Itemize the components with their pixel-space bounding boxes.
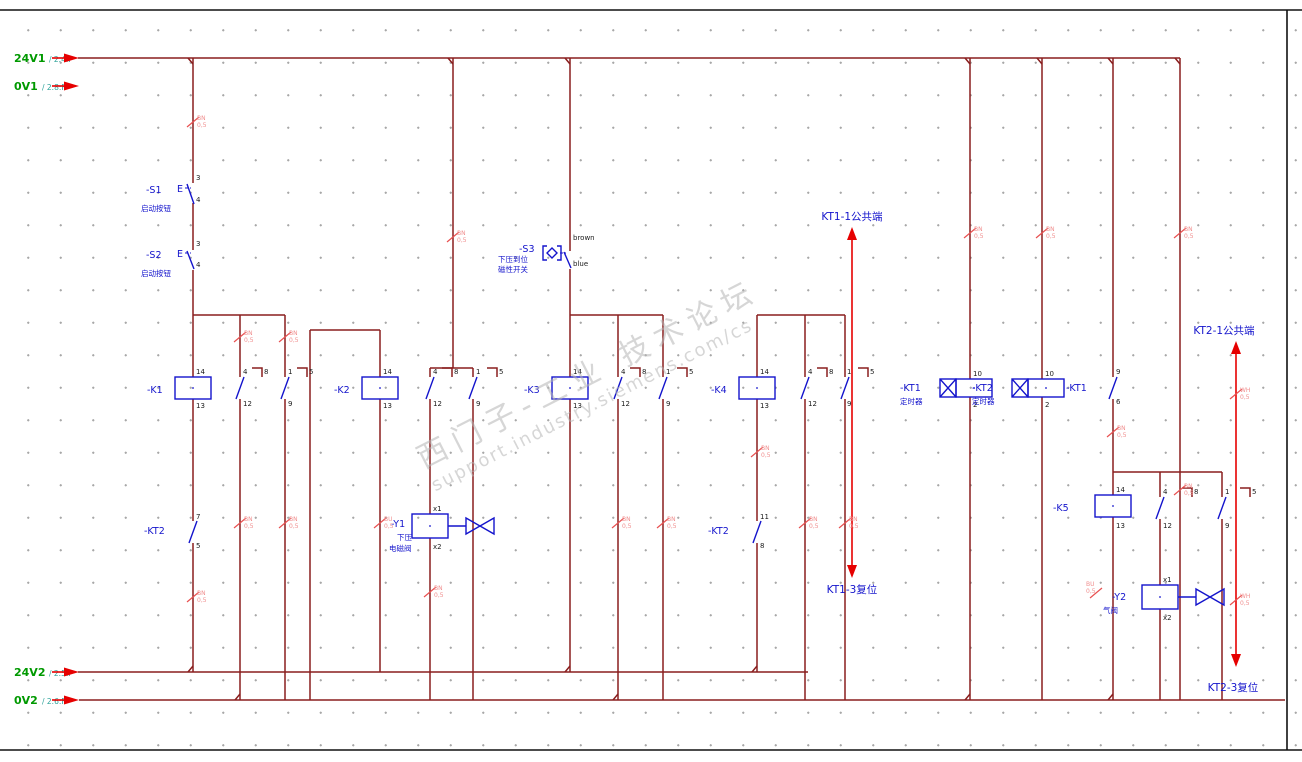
svg-text:BN0,5: BN0,5	[289, 330, 299, 344]
kt2-contact-left-pin-top: 7	[196, 513, 200, 521]
s2-pin-bottom: 4	[196, 261, 201, 269]
k5-pin-13: 13	[1116, 522, 1125, 530]
drawing-frame	[0, 10, 1302, 750]
k4-contact1-pin-top: 4	[808, 368, 813, 376]
svg-text:WH0,5: WH0,5	[1240, 387, 1250, 401]
svg-text:BN0,5: BN0,5	[974, 226, 984, 240]
k1-pin-13: 13	[196, 402, 205, 410]
k4-pin-13: 13	[760, 402, 769, 410]
rail-24v2: 24V2 / 2.5:F	[14, 666, 79, 679]
k2-contact1-aux-pin: 8	[454, 368, 458, 376]
k4-tag: -K4	[711, 385, 727, 396]
k1-contact2-aux-pin: 5	[309, 368, 313, 376]
s3-wire-brown: brown	[573, 234, 595, 242]
k5-pin-14: 14	[1116, 486, 1125, 494]
arrow-down-icon	[1231, 654, 1241, 667]
svg-text:BN0,5: BN0,5	[809, 516, 819, 530]
k4-contact1-aux-pin: 8	[829, 368, 833, 376]
k3-tag: -K3	[524, 385, 540, 396]
y2-pin-top: x1	[1163, 576, 1172, 584]
s2-pin-top: 3	[196, 240, 200, 248]
k3-contact2-pin-top: 1	[666, 368, 670, 376]
k4-contact2-pin-bottom: 9	[847, 400, 851, 408]
s1-desc: 启动按钮	[141, 203, 171, 213]
k5-contact1-pin-top: 4	[1163, 488, 1168, 496]
k1-contact1-pin-top: 4	[243, 368, 248, 376]
svg-text:BN0,5: BN0,5	[1046, 226, 1056, 240]
rail-0v2-ref: / 2.6:F	[42, 697, 66, 706]
k4-contact2-aux-pin: 5	[870, 368, 874, 376]
k1-contact2-pin-top: 1	[288, 368, 292, 376]
k3-contact2-aux-pin: 5	[689, 368, 693, 376]
kt2-desc: 定时器	[972, 396, 995, 406]
arrow-up-icon	[847, 227, 857, 240]
k5-contact2-pin-top: 1	[1225, 488, 1229, 496]
y2-desc: 气阀	[1103, 605, 1118, 615]
rail-24v1: 24V1 / 2.4:F	[14, 52, 79, 65]
kt2-contact-left-pin-bottom: 5	[196, 542, 200, 550]
svg-text:BN0,5: BN0,5	[1117, 425, 1127, 439]
k1-pin-14: 14	[196, 368, 205, 376]
svg-text:BN0,5: BN0,5	[434, 585, 444, 599]
svg-text:BN0,5: BN0,5	[667, 516, 677, 530]
k2-contact1-pin-top: 4	[433, 368, 438, 376]
k2-pin-13: 13	[383, 402, 392, 410]
y1-desc-1: 下压	[397, 533, 412, 542]
svg-text:BN0,5: BN0,5	[457, 230, 467, 244]
y1-pin-top: x1	[433, 505, 442, 513]
kt2-tag: -KT2	[972, 383, 993, 394]
kt1-annotation: KT1-1公共端 KT1-3复位	[821, 210, 883, 596]
svg-text:BN0,5: BN0,5	[622, 516, 632, 530]
relay-k1: -K1 14 13 4 12 8 1 9 5	[147, 368, 313, 410]
svg-text:BN0,5: BN0,5	[244, 330, 254, 344]
k5-contact2-aux-pin: 5	[1252, 488, 1256, 496]
svg-text:BU0,5: BU0,5	[1086, 581, 1096, 595]
svg-text:BU0,5: BU0,5	[384, 516, 394, 530]
schematic-page: 24V1 / 2.4:F 0V1 / 2.8:F 24V2 / 2.5:F 0V…	[0, 0, 1302, 762]
wiring	[78, 58, 1285, 700]
relay-k3: -K3 14 13 4 12 8 1 9 5	[524, 368, 693, 410]
kt1-common-label: KT1-1公共端	[821, 210, 883, 223]
k2-contact1-pin-bottom: 12	[433, 400, 442, 408]
k3-pin-13: 13	[573, 402, 582, 410]
kt1-desc: 定时器	[900, 396, 923, 406]
k5-tag: -K5	[1053, 503, 1069, 514]
k2-contact2-pin-top: 1	[476, 368, 480, 376]
rail-0v2-label: 0V2	[14, 694, 38, 707]
kt2-contact-mid: -KT2 11 8	[708, 513, 769, 550]
s3-tag: -S3	[519, 244, 535, 255]
valve-y1: -Y1 x1 x2 下压 电磁阀	[389, 505, 494, 553]
k5-contact1-pin-bottom: 12	[1163, 522, 1172, 530]
svg-text:BN0,5: BN0,5	[289, 516, 299, 530]
svg-text:BN0,5: BN0,5	[761, 445, 771, 459]
y2-tag: -Y2	[1112, 592, 1126, 603]
kt2-x-icon	[1012, 379, 1028, 397]
svg-text:BN0,5: BN0,5	[849, 516, 859, 530]
k1-contact1-pin-bottom: 12	[243, 400, 252, 408]
kt2-contact-left-tag: -KT2	[144, 526, 165, 537]
svg-text:BN0,5: BN0,5	[197, 590, 207, 604]
k4-contact2-pin-top: 1	[847, 368, 851, 376]
kt1-contact-pin-bottom: 6	[1116, 398, 1121, 406]
rail-0v1-ref: / 2.8:F	[42, 83, 66, 92]
s2-operator-icon: E	[177, 249, 183, 260]
k3-contact1-pin-bottom: 12	[621, 400, 630, 408]
kt1-reset-label: KT1-3复位	[827, 583, 878, 596]
svg-text:WH0,5: WH0,5	[1240, 593, 1250, 607]
relay-k2: -K2 14 13 4 12 8 1 9 5	[334, 368, 503, 410]
kt1-pin-top: 10	[973, 370, 982, 378]
kt1-contact-pin-top: 9	[1116, 368, 1120, 376]
k2-pin-14: 14	[383, 368, 392, 376]
k3-contact1-aux-pin: 8	[642, 368, 646, 376]
k2-tag: -K2	[334, 385, 350, 396]
valve-y2: -Y2 x1 x2 气阀	[1103, 576, 1224, 622]
kt2-pin-top: 10	[1045, 370, 1054, 378]
s3-desc-1: 下压到位	[498, 254, 528, 264]
kt2-contact-mid-tag: -KT2	[708, 526, 729, 537]
k5-contact1-aux-pin: 8	[1194, 488, 1198, 496]
k4-pin-14: 14	[760, 368, 769, 376]
k2-contact2-pin-bottom: 9	[476, 400, 480, 408]
y1-pin-bottom: x2	[433, 543, 442, 551]
switch-s2: -S2 E 3 4 启动按钮	[141, 240, 201, 278]
k3-contact2-pin-bottom: 9	[666, 400, 670, 408]
kt1-tag: -KT1	[900, 383, 921, 394]
y2-pin-bottom: x2	[1163, 614, 1172, 622]
kt2-pin-bottom: 2	[1045, 401, 1049, 409]
s2-desc: 启动按钮	[141, 268, 171, 278]
kt2-common-label: KT2-1公共端	[1193, 324, 1255, 337]
schematic-canvas: 24V1 / 2.4:F 0V1 / 2.8:F 24V2 / 2.5:F 0V…	[0, 0, 1302, 762]
switch-s3: -S3 brown blue 下压到位 磁性开关	[498, 234, 595, 274]
svg-text:BN0,5: BN0,5	[1184, 483, 1194, 497]
rail-0v1: 0V1 / 2.8:F	[14, 80, 79, 93]
rail-24v2-label: 24V2	[14, 666, 45, 679]
s3-wire-blue: blue	[573, 260, 588, 268]
switch-s1: -S1 E 3 4 启动按钮	[141, 174, 201, 213]
y2-valve-icon	[1196, 589, 1210, 605]
s3-magnet-icon	[547, 248, 557, 258]
kt2-contact-mid-pin-top: 11	[760, 513, 769, 521]
kt2-contact-left: -KT2 7 5	[144, 513, 200, 550]
s3-desc-2: 磁性开关	[498, 264, 528, 274]
rail-0v1-label: 0V1	[14, 80, 38, 93]
arrow-up-icon	[1231, 341, 1241, 354]
s1-pin-bottom: 4	[196, 196, 201, 204]
kt1-contact-tag: -KT1	[1066, 383, 1087, 394]
kt1-x-icon	[940, 379, 956, 397]
rail-0v2: 0V2 / 2.6:F	[14, 694, 79, 707]
rail-24v1-label: 24V1	[14, 52, 45, 65]
k3-contact1-pin-top: 4	[621, 368, 626, 376]
k1-contact1-aux-pin: 8	[264, 368, 268, 376]
k1-tag: -K1	[147, 385, 163, 396]
s1-pin-top: 3	[196, 174, 200, 182]
relay-k4: -K4 14 13 4 12 8 1 9 5	[711, 368, 874, 410]
s1-operator-icon: E	[177, 184, 183, 195]
relay-k5: -K5 14 13 4 12 8 1 9 5	[1053, 486, 1256, 530]
svg-text:BN0,5: BN0,5	[197, 115, 207, 129]
kt2-contact-mid-pin-bottom: 8	[760, 542, 764, 550]
kt2-annotation: KT2-1公共端 KT2-3复位	[1193, 324, 1258, 694]
timer-kt2: -KT2 定时器 10 2	[972, 370, 1064, 409]
y1-desc-2: 电磁阀	[389, 543, 412, 553]
k2-contact2-aux-pin: 5	[499, 368, 503, 376]
k4-contact1-pin-bottom: 12	[808, 400, 817, 408]
k5-contact2-pin-bottom: 9	[1225, 522, 1229, 530]
svg-text:BN0,5: BN0,5	[1184, 226, 1194, 240]
k1-contact2-pin-bottom: 9	[288, 400, 292, 408]
arrow-down-icon	[847, 565, 857, 578]
kt2-reset-label: KT2-3复位	[1208, 681, 1259, 694]
s1-tag: -S1	[146, 185, 162, 196]
s2-tag: -S2	[146, 250, 162, 261]
k3-pin-14: 14	[573, 368, 582, 376]
svg-text:BN0,5: BN0,5	[244, 516, 254, 530]
